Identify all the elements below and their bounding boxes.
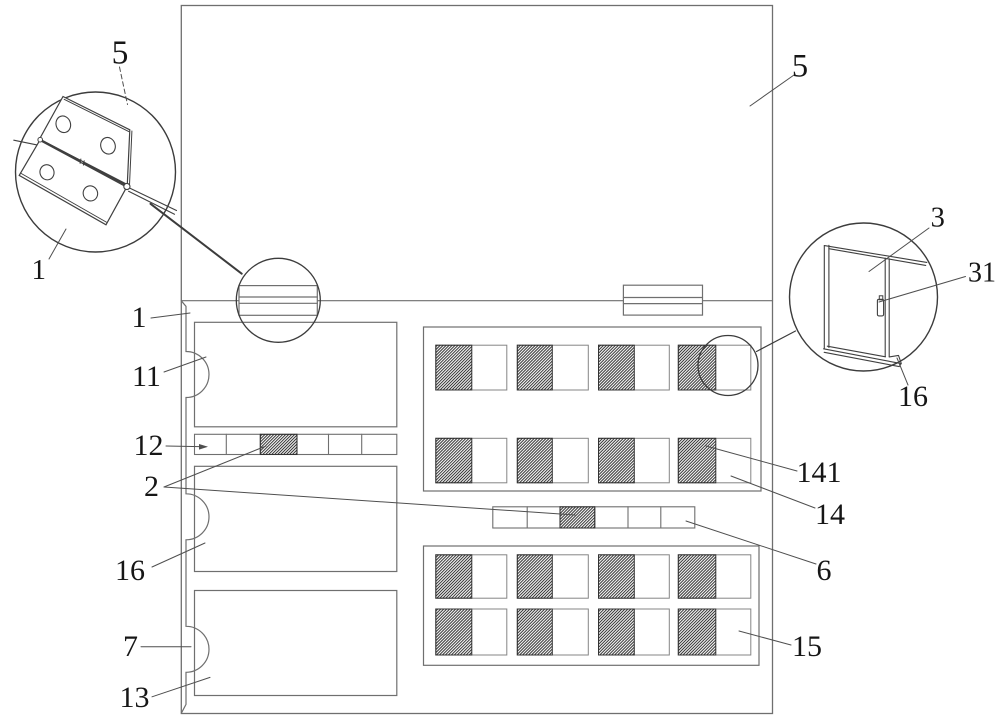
svg-text:13: 13 [120,681,150,714]
svg-text:14: 14 [815,498,845,531]
svg-text:15: 15 [792,630,822,663]
svg-text:16: 16 [115,554,145,587]
svg-text:141: 141 [797,456,842,489]
svg-text:12: 12 [134,429,164,462]
svg-text:3: 3 [931,203,945,234]
svg-text:5: 5 [112,35,129,72]
svg-text:7: 7 [123,630,138,663]
svg-text:1: 1 [31,254,46,286]
svg-text:5: 5 [792,49,808,85]
svg-text:6: 6 [817,554,832,587]
svg-text:31: 31 [968,258,996,289]
svg-text:2: 2 [144,470,159,503]
svg-text:11: 11 [132,360,161,393]
svg-text:1: 1 [132,301,147,334]
svg-text:16: 16 [898,380,928,413]
